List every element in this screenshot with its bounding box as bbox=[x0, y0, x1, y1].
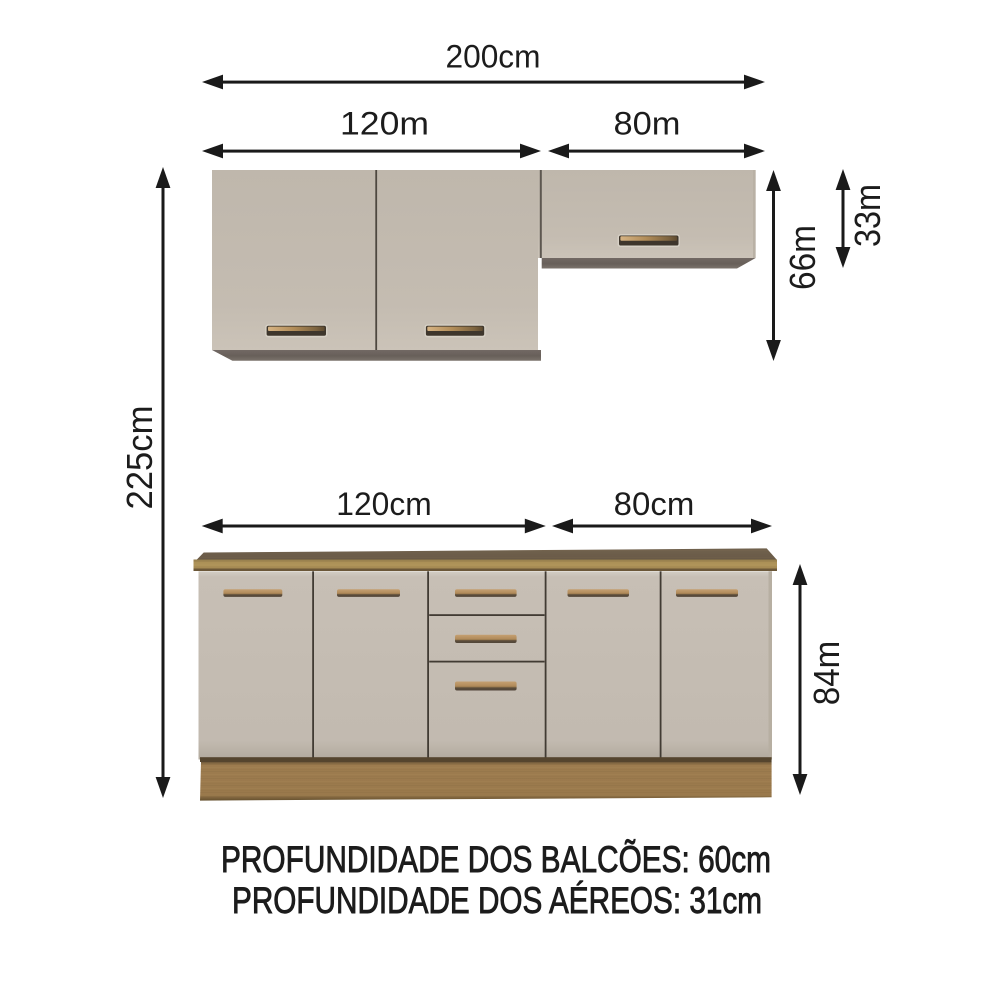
svg-text:66m: 66m bbox=[782, 225, 823, 290]
svg-text:80m: 80m bbox=[614, 106, 681, 142]
svg-text:225cm: 225cm bbox=[119, 406, 160, 510]
svg-text:PROFUNDIDADE DOS AÉREOS: 31cm: PROFUNDIDADE DOS AÉREOS: 31cm bbox=[232, 880, 762, 921]
svg-text:120cm: 120cm bbox=[336, 486, 431, 522]
svg-text:200cm: 200cm bbox=[446, 39, 541, 75]
svg-text:120m: 120m bbox=[340, 106, 429, 142]
svg-text:84m: 84m bbox=[806, 641, 847, 706]
svg-text:80cm: 80cm bbox=[614, 486, 695, 522]
svg-text:33m: 33m bbox=[847, 184, 888, 247]
svg-text:PROFUNDIDADE DOS BALCÕES: 60cm: PROFUNDIDADE DOS BALCÕES: 60cm bbox=[221, 839, 771, 880]
